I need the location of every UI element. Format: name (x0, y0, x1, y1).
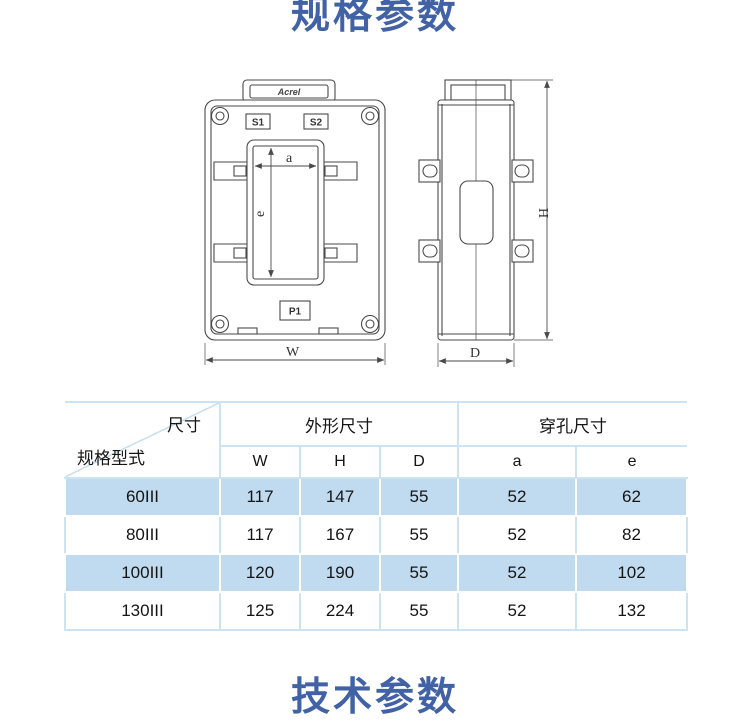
column-header-a: a (458, 446, 576, 478)
cell-value: 147 (300, 478, 380, 516)
column-group-hole: 穿孔尺寸 (458, 402, 687, 446)
dimension-drawings: Acrel S1 S2 (178, 77, 580, 373)
column-group-outline: 外形尺寸 (220, 402, 458, 446)
spec-table-section: 尺寸 规格型式 外形尺寸 穿孔尺寸 W H D a e 60III 117 14… (64, 401, 750, 631)
cell-value: 117 (220, 516, 300, 554)
spec-table: 尺寸 规格型式 外形尺寸 穿孔尺寸 W H D a e 60III 117 14… (64, 401, 688, 631)
column-header-w: W (220, 446, 300, 478)
column-header-h: H (300, 446, 380, 478)
cell-model: 80III (65, 516, 220, 554)
table-corner-cell: 尺寸 规格型式 (65, 402, 220, 478)
cell-value: 55 (380, 478, 458, 516)
cell-value: 55 (380, 592, 458, 630)
cell-value: 132 (576, 592, 687, 630)
table-row: 80III 117 167 55 52 82 (65, 516, 687, 554)
dim-label-a: a (286, 151, 293, 166)
dim-label-e: e (253, 211, 268, 217)
table-row: 60III 117 147 55 52 62 (65, 478, 687, 516)
page-title-specifications: 规格参数 (0, 0, 750, 37)
cell-value: 52 (458, 554, 576, 592)
side-view-drawing: H D (419, 80, 553, 367)
terminal-s1-label: S1 (252, 118, 265, 129)
cell-value: 52 (458, 592, 576, 630)
corner-label-model: 规格型式 (77, 444, 145, 469)
cell-value: 82 (576, 516, 687, 554)
terminal-p1-label: P1 (289, 307, 302, 318)
cell-value: 62 (576, 478, 687, 516)
dim-label-w: W (286, 345, 300, 360)
technical-drawing-svg: Acrel S1 S2 (178, 77, 580, 373)
cell-value: 52 (458, 516, 576, 554)
cell-value: 224 (300, 592, 380, 630)
corner-label-dimension: 尺寸 (167, 411, 201, 436)
page-title-technical: 技术参数 (0, 677, 750, 719)
cell-value: 55 (380, 516, 458, 554)
cell-model: 130III (65, 592, 220, 630)
cell-value: 55 (380, 554, 458, 592)
front-view-drawing: Acrel S1 S2 (205, 80, 385, 365)
cell-model: 100III (65, 554, 220, 592)
cell-value: 52 (458, 478, 576, 516)
cell-value: 117 (220, 478, 300, 516)
cell-value: 125 (220, 592, 300, 630)
cell-value: 102 (576, 554, 687, 592)
dim-label-d: D (470, 346, 480, 361)
brand-logo-label: Acrel (277, 87, 301, 97)
cell-model: 60III (65, 478, 220, 516)
table-row: 130III 125 224 55 52 132 (65, 592, 687, 630)
dim-label-h: H (535, 208, 550, 218)
column-header-d: D (380, 446, 458, 478)
cell-value: 120 (220, 554, 300, 592)
terminal-s2-label: S2 (310, 118, 323, 129)
cell-value: 190 (300, 554, 380, 592)
table-row: 100III 120 190 55 52 102 (65, 554, 687, 592)
column-header-e: e (576, 446, 687, 478)
cell-value: 167 (300, 516, 380, 554)
